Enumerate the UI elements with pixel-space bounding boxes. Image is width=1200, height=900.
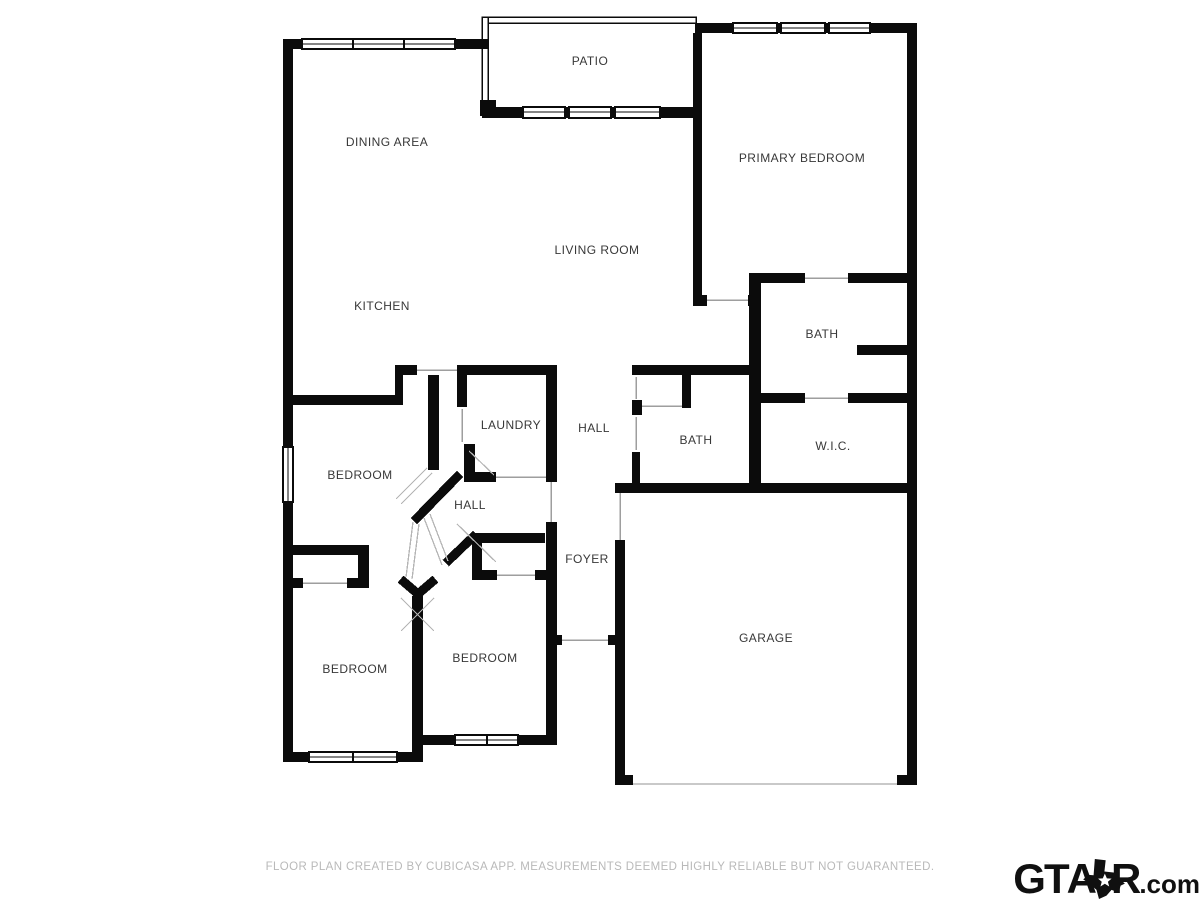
- logo-text-gt: GT: [1013, 858, 1067, 900]
- room-label-wic: W.I.C.: [815, 439, 850, 453]
- room-label-living-room: LIVING ROOM: [555, 243, 640, 257]
- windows: [283, 23, 870, 762]
- disclaimer-text: FLOOR PLAN CREATED BY CUBICASA APP. MEAS…: [266, 861, 935, 873]
- floor-plan-drawing: [0, 0, 1200, 900]
- room-label-hall-upper: HALL: [578, 421, 610, 435]
- gtar-logo: GTA R.com: [1013, 853, 1200, 900]
- room-label-foyer: FOYER: [565, 552, 609, 566]
- texas-star-icon: [1083, 859, 1125, 899]
- room-label-bath-hall: BATH: [680, 433, 713, 447]
- room-label-bath-primary: BATH: [806, 327, 839, 341]
- room-label-dining-area: DINING AREA: [346, 135, 428, 149]
- room-label-laundry: LAUNDRY: [481, 418, 541, 432]
- logo-text-tld: .com: [1139, 871, 1200, 897]
- door-openings: [303, 278, 897, 784]
- room-label-patio: PATIO: [572, 54, 608, 68]
- room-label-kitchen: KITCHEN: [354, 299, 410, 313]
- room-label-primary-bedroom: PRIMARY BEDROOM: [739, 151, 865, 165]
- room-label-bedroom-bottom-middle: BEDROOM: [452, 651, 517, 665]
- room-label-garage: GARAGE: [739, 631, 793, 645]
- room-label-hall-lower: HALL: [454, 498, 486, 512]
- floor-plan-page: PATIO DINING AREA PRIMARY BEDROOM LIVING…: [0, 0, 1200, 900]
- room-label-bedroom-bottom-left: BEDROOM: [322, 662, 387, 676]
- room-label-bedroom-middle: BEDROOM: [327, 468, 392, 482]
